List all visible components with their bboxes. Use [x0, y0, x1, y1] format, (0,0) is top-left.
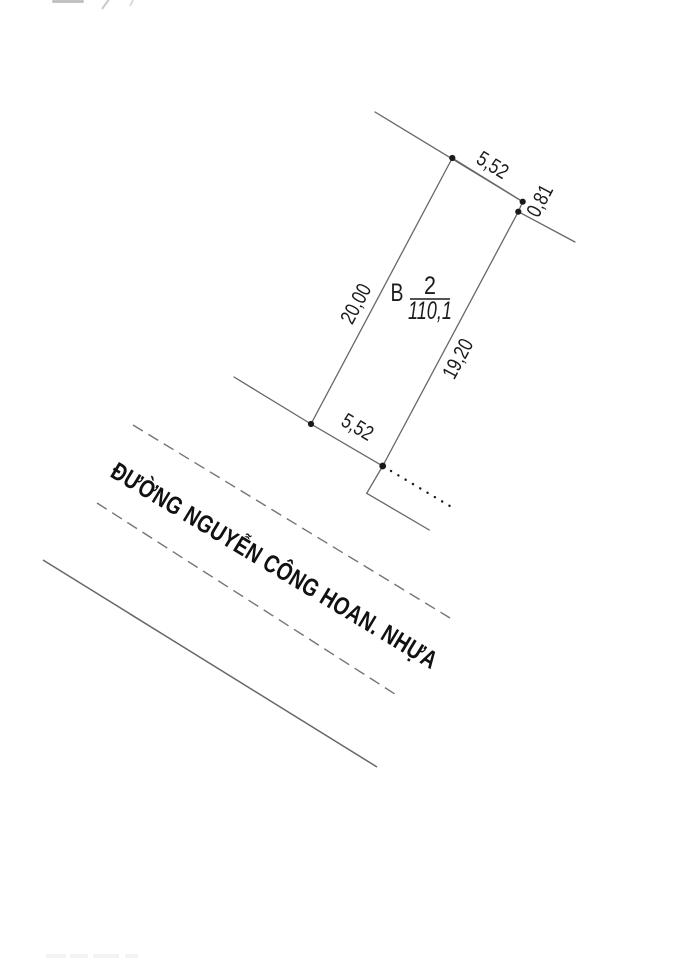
boundary-line-upper-continuation	[518, 212, 575, 242]
slash-icon	[102, 0, 110, 9]
dimension-right: 19,20	[438, 335, 478, 383]
parcel-label: B 2 110,1	[391, 272, 453, 325]
dimension-top: 5,52	[472, 147, 512, 184]
right-edge-extension	[367, 466, 383, 493]
dimension-left: 20,00	[336, 280, 376, 328]
page-count-artifact	[130, 0, 134, 6]
vertex-bottom-left	[308, 421, 314, 427]
viewer-overlay-artifact	[52, 0, 134, 9]
bottom-scan-artifact	[46, 954, 138, 958]
parcel-area: 110,1	[408, 297, 452, 325]
parcel-block: B	[391, 279, 404, 307]
dimension-bottom: 5,52	[337, 409, 377, 446]
parcel-number: 2	[424, 272, 436, 300]
road-name-label: ĐƯỜNG NGUYỄN CÔNG HOAN. NHỰA	[106, 455, 444, 674]
step-boundary	[367, 493, 430, 530]
photo-icon	[52, 0, 84, 3]
vertex-top-right-inner	[515, 209, 521, 215]
boundary-line-lower-extension	[234, 377, 311, 424]
cadastral-plan: 5,52 0,81 20,00 19,20 5,52 B 2 110,1 ĐƯỜ…	[0, 0, 683, 960]
vertex-bottom-right	[379, 463, 386, 470]
dotted-tie-line	[391, 471, 452, 507]
vertex-top-left	[449, 155, 455, 161]
dimension-corner: 0,81	[522, 181, 558, 221]
plan-drawing: 5,52 0,81 20,00 19,20 5,52 B 2 110,1 ĐƯỜ…	[0, 0, 683, 960]
